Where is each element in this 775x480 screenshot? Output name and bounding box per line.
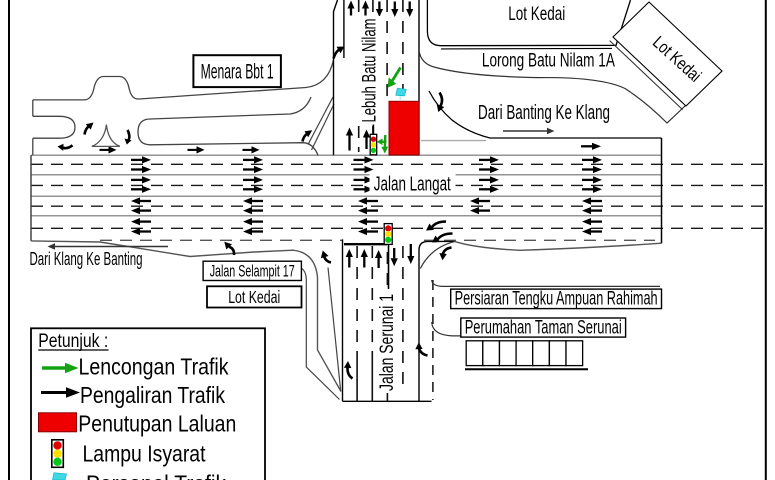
svg-text:Jalan Selampit 17: Jalan Selampit 17 — [210, 263, 295, 281]
svg-text:Persiaran Tengku Ampuan Rahima: Persiaran Tengku Ampuan Rahimah — [455, 288, 658, 310]
svg-text:Jalan Langat: Jalan Langat — [374, 173, 451, 196]
svg-text:Penutupan Laluan: Penutupan Laluan — [78, 411, 236, 437]
svg-text:Dari Klang Ke Banting: Dari Klang Ke Banting — [30, 248, 143, 269]
svg-text:Jalan Serunai 1: Jalan Serunai 1 — [377, 294, 398, 391]
svg-text:Menara Bbt 1: Menara Bbt 1 — [201, 61, 274, 84]
svg-text:Lencongan Trafik: Lencongan Trafik — [79, 354, 229, 380]
svg-text:Lorong Batu Nilam 1A: Lorong Batu Nilam 1A — [482, 51, 615, 72]
svg-text:Lot Kedai: Lot Kedai — [228, 287, 280, 307]
svg-text:Perumahan Taman Serunai: Perumahan Taman Serunai — [465, 317, 622, 338]
svg-text:Lampu Isyarat: Lampu Isyarat — [83, 441, 207, 467]
svg-text:Lot Kedai: Lot Kedai — [508, 3, 565, 25]
svg-text:Personel Trafik: Personel Trafik — [86, 471, 226, 480]
svg-text:Dari Banting Ke Klang: Dari Banting Ke Klang — [478, 102, 610, 124]
svg-text:Petunjuk :: Petunjuk : — [38, 331, 108, 352]
svg-text:Lebuh Batu Nilam: Lebuh Batu Nilam — [359, 19, 381, 123]
svg-text:Pengaliran Trafik: Pengaliran Trafik — [80, 382, 225, 408]
